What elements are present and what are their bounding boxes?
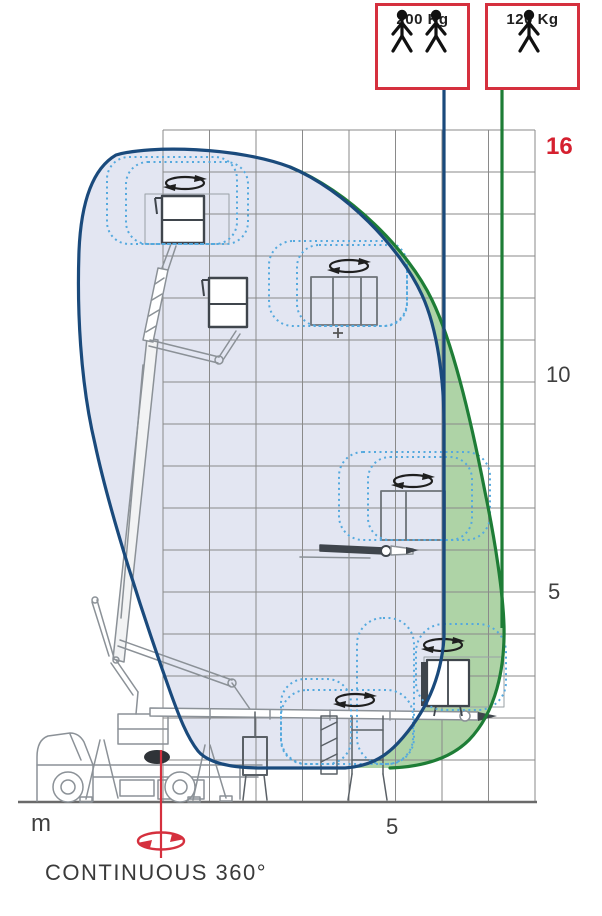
- axis-unit-label: m: [31, 810, 51, 838]
- turret-counterweight: [144, 750, 170, 764]
- y-axis-max-label: 16: [546, 133, 573, 161]
- basket-upper-mid: [202, 278, 247, 327]
- continuous-rotation-caption: CONTINUOUS 360°: [45, 860, 267, 886]
- envelope-diagram-canvas: [0, 0, 602, 916]
- two-persons-icon: [378, 6, 460, 56]
- y-axis-tick-5: 5: [548, 579, 560, 605]
- rotation-axis: [137, 750, 185, 858]
- one-person-icon: [488, 6, 570, 56]
- capacity-box-120kg: 120 Kg: [485, 3, 580, 90]
- y-axis-tick-10: 10: [546, 362, 570, 388]
- capacity-box-200kg: 200 Kg: [375, 3, 470, 90]
- working-envelope-diagram: 200 Kg 120 Kg: [0, 0, 602, 916]
- x-axis-tick-5: 5: [386, 814, 398, 840]
